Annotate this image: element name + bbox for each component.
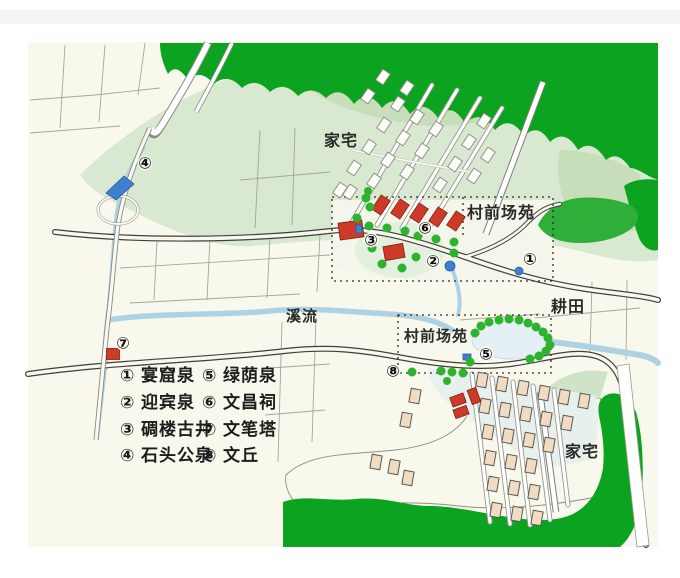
- map-marker-3: ③: [364, 233, 378, 250]
- welcome-spring-marker: [445, 261, 455, 271]
- label-top-houses: 家宅: [324, 131, 358, 150]
- legend-label-5: 绿荫泉: [223, 365, 277, 385]
- legend-num-1: ①: [120, 366, 134, 385]
- map-marker-2: ②: [426, 254, 440, 271]
- label-farmland: 耕田: [551, 297, 585, 316]
- legend-label-1: 宴窟泉: [141, 365, 195, 385]
- top-gray-bar: [0, 10, 680, 24]
- well-marker: [356, 225, 362, 233]
- legend-num-5: ⑤: [202, 366, 216, 385]
- map-marker-4: ④: [138, 156, 152, 173]
- wenchang-shrine-building: [383, 243, 405, 260]
- legend-num-3: ③: [120, 420, 134, 439]
- legend-num-7: ⑦: [202, 420, 216, 439]
- map-marker-8: ⑧: [386, 364, 400, 381]
- spring-marker-1: [515, 267, 523, 275]
- map-marker-1: ①: [523, 252, 537, 269]
- label-lower-houses: 家宅: [565, 442, 599, 461]
- map-marker-7: ⑦: [116, 336, 130, 353]
- label-top-plaza: 村前场苑: [467, 203, 535, 222]
- village-plan-map: ① ② ③ ④ ⑤ ⑥ ⑦ ⑧ 家宅 村前场苑 村前场苑 耕田 溪流 家宅 ① …: [0, 0, 680, 578]
- map-marker-6: ⑥: [418, 221, 432, 238]
- village-map-page: ① ② ③ ④ ⑤ ⑥ ⑦ ⑧ 家宅 村前场苑 村前场苑 耕田 溪流 家宅 ① …: [0, 0, 680, 578]
- label-stream: 溪流: [286, 307, 318, 325]
- legend-label-6: 文昌祠: [223, 392, 277, 412]
- legend-label-7: 文笔塔: [223, 419, 277, 439]
- legend-num-6: ⑥: [202, 393, 216, 412]
- label-lower-plaza: 村前场苑: [404, 327, 468, 345]
- legend-num-2: ②: [120, 393, 134, 412]
- map-marker-5: ⑤: [479, 347, 493, 364]
- legend-num-4: ④: [120, 446, 134, 465]
- legend-num-8: ⑧: [202, 446, 216, 465]
- legend-label-2: 迎宾泉: [141, 392, 195, 412]
- legend-label-8: 文丘: [223, 445, 259, 465]
